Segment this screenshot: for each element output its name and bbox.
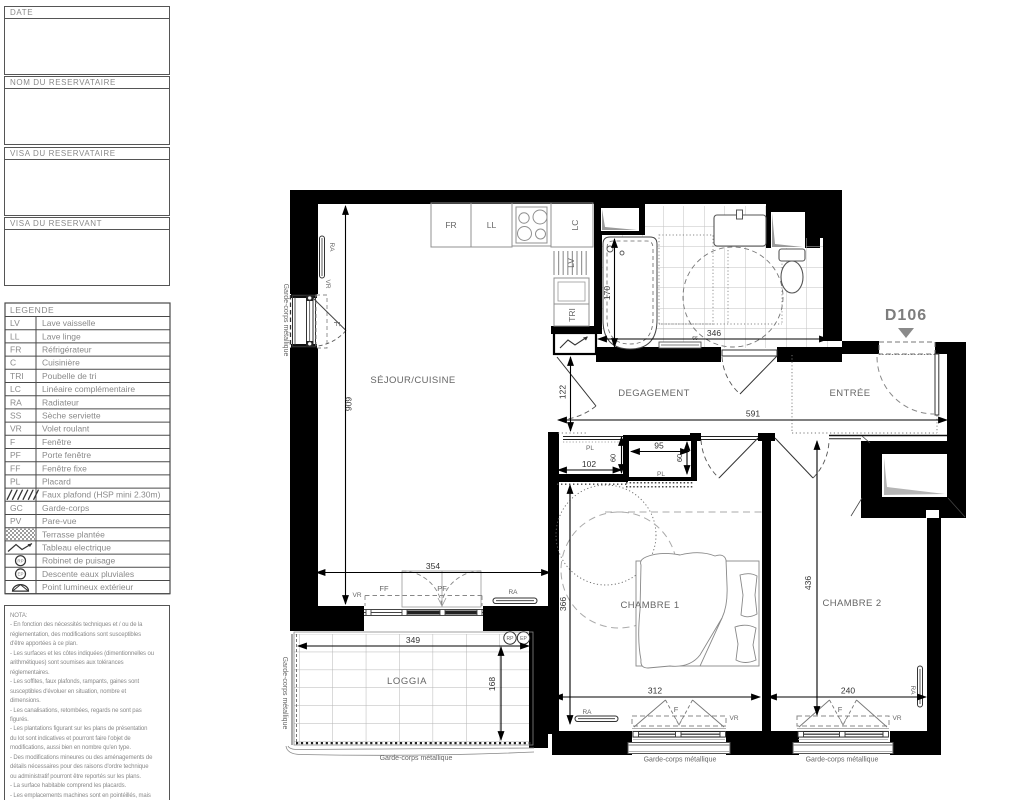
svg-text:FR: FR bbox=[10, 345, 21, 355]
svg-text:168: 168 bbox=[487, 677, 497, 691]
svg-text:346: 346 bbox=[707, 328, 721, 338]
svg-text:60: 60 bbox=[675, 454, 684, 462]
svg-text:EP: EP bbox=[520, 636, 527, 642]
svg-text:LV: LV bbox=[10, 318, 20, 328]
svg-text:Porte fenêtre: Porte fenêtre bbox=[42, 450, 91, 460]
svg-text:60: 60 bbox=[609, 454, 618, 462]
svg-text:TRI: TRI bbox=[567, 308, 577, 322]
svg-text:Placard: Placard bbox=[42, 477, 71, 487]
svg-text:Point lumineux extérieur: Point lumineux extérieur bbox=[42, 582, 133, 592]
svg-text:F: F bbox=[838, 705, 843, 714]
svg-text:Robinet de puisage: Robinet de puisage bbox=[42, 556, 116, 566]
svg-text:591: 591 bbox=[746, 409, 760, 419]
svg-text:RP: RP bbox=[507, 636, 515, 642]
svg-text:VR: VR bbox=[352, 592, 361, 599]
svg-text:354: 354 bbox=[426, 561, 440, 571]
svg-text:349: 349 bbox=[406, 635, 420, 645]
svg-text:Garde-corps métallique: Garde-corps métallique bbox=[806, 757, 879, 764]
svg-text:LC: LC bbox=[10, 384, 21, 394]
svg-text:D106: D106 bbox=[885, 307, 927, 324]
svg-text:RP: RP bbox=[17, 559, 23, 564]
svg-text:FF: FF bbox=[379, 584, 389, 593]
svg-text:102: 102 bbox=[582, 459, 596, 469]
svg-text:LV: LV bbox=[566, 258, 576, 268]
svg-text:GC: GC bbox=[10, 503, 23, 513]
svg-text:Volet roulant: Volet roulant bbox=[42, 424, 90, 434]
svg-text:Garde-corps métallique: Garde-corps métallique bbox=[380, 755, 453, 762]
svg-text:RA: RA bbox=[328, 242, 335, 252]
svg-text:366: 366 bbox=[558, 597, 568, 611]
svg-text:VR: VR bbox=[729, 715, 738, 722]
svg-text:Cuisinière: Cuisinière bbox=[42, 358, 80, 368]
svg-text:RA: RA bbox=[508, 589, 518, 596]
svg-text:Pare-vue: Pare-vue bbox=[42, 516, 77, 526]
svg-text:Linéaire complémentaire: Linéaire complémentaire bbox=[42, 384, 135, 394]
svg-text:PL: PL bbox=[10, 477, 21, 487]
svg-text:SÉJOUR/CUISINE: SÉJOUR/CUISINE bbox=[370, 375, 455, 386]
svg-text:Garde-corps: Garde-corps bbox=[42, 503, 89, 513]
svg-text:Descente eaux pluviales: Descente eaux pluviales bbox=[42, 569, 134, 579]
svg-text:Sèche serviette: Sèche serviette bbox=[42, 411, 101, 421]
svg-text:F: F bbox=[10, 437, 15, 447]
svg-text:DEGAGEMENT: DEGAGEMENT bbox=[618, 388, 690, 399]
svg-text:Lave linge: Lave linge bbox=[42, 331, 81, 341]
svg-text:RA: RA bbox=[909, 685, 916, 695]
svg-text:Fenêtre: Fenêtre bbox=[42, 437, 72, 447]
svg-text:Tableau electrique: Tableau electrique bbox=[42, 543, 111, 553]
svg-text:F: F bbox=[332, 322, 341, 327]
svg-text:CHAMBRE 2: CHAMBRE 2 bbox=[822, 598, 881, 609]
svg-text:PF: PF bbox=[10, 450, 21, 460]
svg-text:436: 436 bbox=[803, 576, 813, 590]
svg-text:Terrasse plantée: Terrasse plantée bbox=[42, 529, 105, 539]
svg-text:LL: LL bbox=[487, 220, 497, 230]
svg-text:Garde-corps métallique: Garde-corps métallique bbox=[282, 284, 289, 357]
svg-text:VR: VR bbox=[324, 279, 331, 288]
svg-text:PL: PL bbox=[657, 471, 665, 478]
svg-text:RA: RA bbox=[10, 397, 22, 407]
svg-text:Lave vaisselle: Lave vaisselle bbox=[42, 318, 96, 328]
svg-text:EP: EP bbox=[17, 572, 23, 577]
svg-text:PL: PL bbox=[586, 445, 594, 452]
svg-text:FF: FF bbox=[10, 463, 20, 473]
svg-text:Faux plafond (HSP mini 2.30m): Faux plafond (HSP mini 2.30m) bbox=[42, 490, 161, 500]
svg-text:Garde-corps métallique: Garde-corps métallique bbox=[281, 657, 288, 730]
svg-text:909: 909 bbox=[344, 397, 354, 411]
svg-text:VR: VR bbox=[10, 424, 22, 434]
svg-text:LL: LL bbox=[10, 331, 20, 341]
svg-text:SS: SS bbox=[10, 411, 22, 421]
svg-text:122: 122 bbox=[558, 385, 568, 399]
svg-text:Radiateur: Radiateur bbox=[42, 397, 79, 407]
svg-text:ENTRÉE: ENTRÉE bbox=[830, 388, 871, 399]
svg-text:CHAMBRE 1: CHAMBRE 1 bbox=[620, 600, 679, 611]
svg-text:VR: VR bbox=[892, 715, 901, 722]
svg-text:F: F bbox=[674, 705, 679, 714]
svg-text:Garde-corps métallique: Garde-corps métallique bbox=[644, 757, 717, 764]
svg-text:312: 312 bbox=[648, 686, 662, 696]
svg-text:Poubelle de tri: Poubelle de tri bbox=[42, 371, 96, 381]
svg-text:170: 170 bbox=[602, 286, 612, 300]
svg-text:FR: FR bbox=[445, 220, 456, 230]
svg-text:66: 66 bbox=[692, 336, 698, 342]
svg-text:95: 95 bbox=[654, 441, 664, 451]
svg-text:TRI: TRI bbox=[10, 371, 24, 381]
svg-text:PF: PF bbox=[437, 584, 447, 593]
svg-text:C: C bbox=[10, 358, 16, 368]
svg-text:RA: RA bbox=[582, 709, 592, 716]
svg-text:PV: PV bbox=[10, 516, 22, 526]
svg-text:240: 240 bbox=[841, 686, 855, 696]
svg-text:Réfrigérateur: Réfrigérateur bbox=[42, 345, 92, 355]
svg-text:LC: LC bbox=[570, 220, 580, 231]
svg-text:LEGENDE: LEGENDE bbox=[10, 305, 54, 315]
svg-text:Fenêtre fixe: Fenêtre fixe bbox=[42, 463, 87, 473]
svg-text:LOGGIA: LOGGIA bbox=[387, 676, 427, 687]
